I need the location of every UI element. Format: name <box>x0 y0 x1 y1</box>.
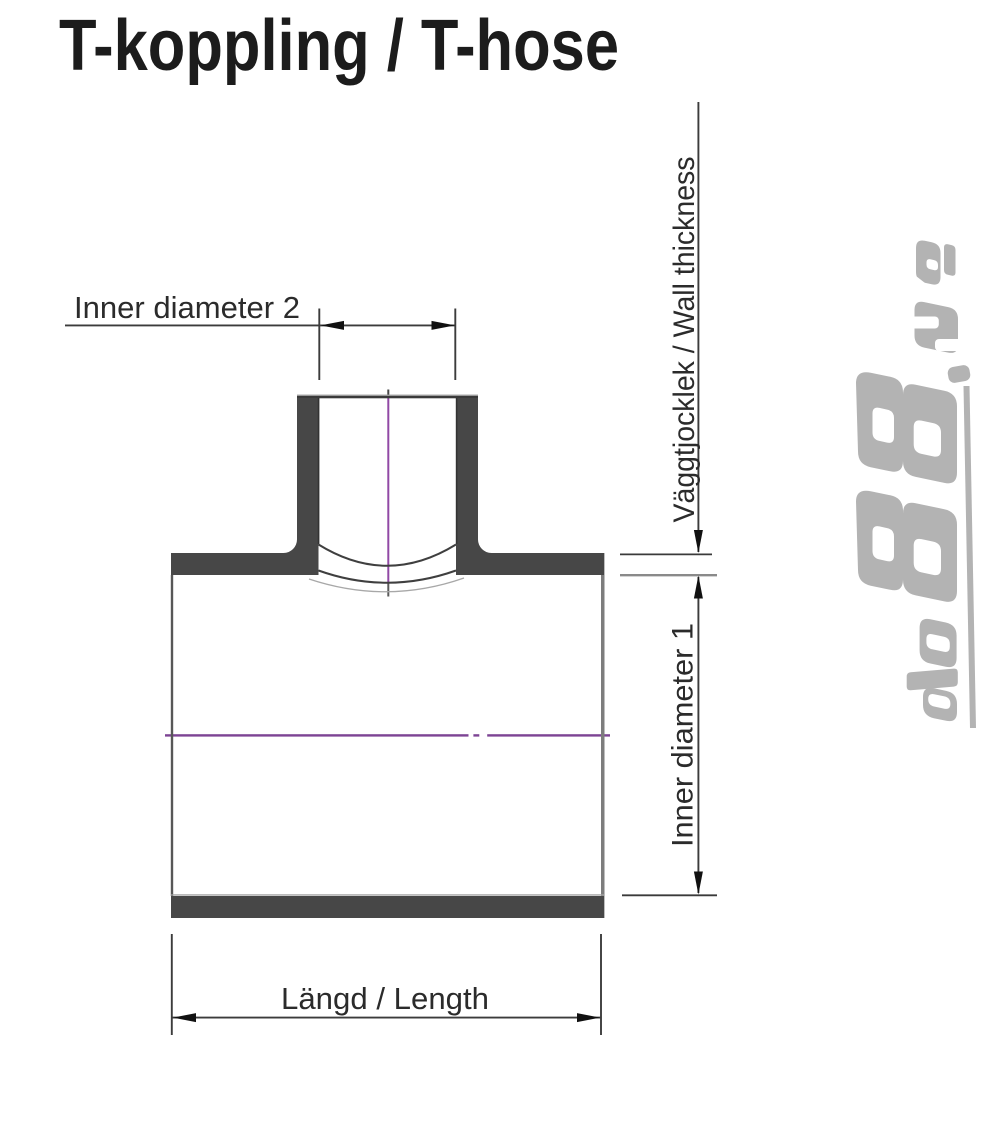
svg-text:Inner diameter 2: Inner diameter 2 <box>74 290 300 325</box>
svg-text:T-koppling / T-hose: T-koppling / T-hose <box>59 6 619 86</box>
svg-text:Väggtjocklek / Wall thickness: Väggtjocklek / Wall thickness <box>668 157 701 523</box>
svg-text:Längd / Length: Längd / Length <box>281 981 489 1016</box>
svg-text:Inner diameter 1: Inner diameter 1 <box>667 623 700 847</box>
